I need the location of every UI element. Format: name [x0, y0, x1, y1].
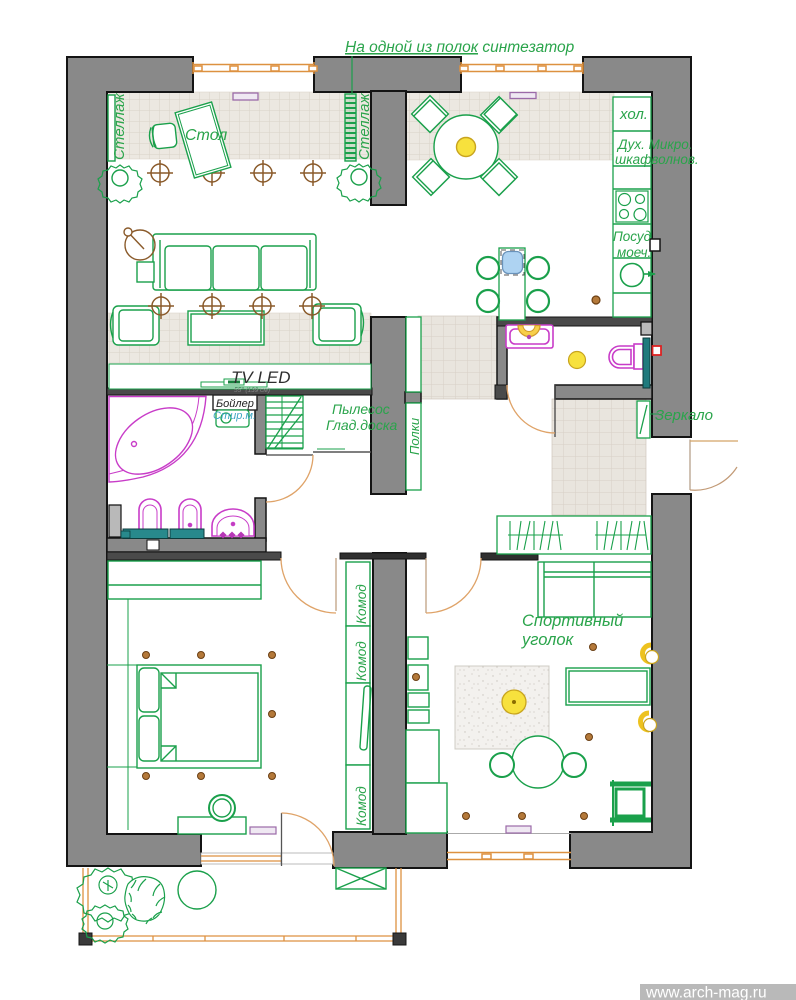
- svg-text:На одной из полок синтезатор: На одной из полок синтезатор: [345, 39, 575, 56]
- svg-text:Дух. Микро.: Дух. Микро.: [616, 137, 693, 152]
- svg-text:Комод: Комод: [354, 786, 369, 826]
- svg-text:Комод: Комод: [354, 584, 369, 624]
- svg-text:55" (139 см): 55" (139 см): [234, 387, 270, 394]
- svg-text:моеч.: моеч.: [617, 245, 651, 260]
- svg-text:уголок: уголок: [521, 631, 574, 649]
- svg-text:Глад.доска: Глад.доска: [326, 417, 397, 433]
- svg-text:Спортивный: Спортивный: [522, 612, 623, 630]
- svg-text:хол.: хол.: [619, 106, 648, 123]
- svg-text:Комод: Комод: [354, 641, 369, 681]
- svg-text:Стир.м.: Стир.м.: [213, 410, 256, 422]
- svg-text:Зеркало: Зеркало: [655, 407, 713, 424]
- svg-text:TV LED: TV LED: [231, 368, 291, 387]
- svg-text:Посуд: Посуд: [613, 229, 652, 244]
- svg-text:Бойлер: Бойлер: [216, 398, 254, 410]
- svg-text:Полки: Полки: [407, 418, 422, 455]
- svg-text:www.arch-mag.ru: www.arch-mag.ru: [645, 985, 767, 1000]
- svg-text:шкафволнов.: шкафволнов.: [615, 152, 699, 167]
- svg-text:Стеллаж: Стеллаж: [111, 93, 128, 160]
- svg-text:Пылесос: Пылесос: [332, 401, 390, 417]
- svg-text:Стол: Стол: [185, 127, 227, 144]
- svg-text:Стеллаж: Стеллаж: [356, 93, 373, 160]
